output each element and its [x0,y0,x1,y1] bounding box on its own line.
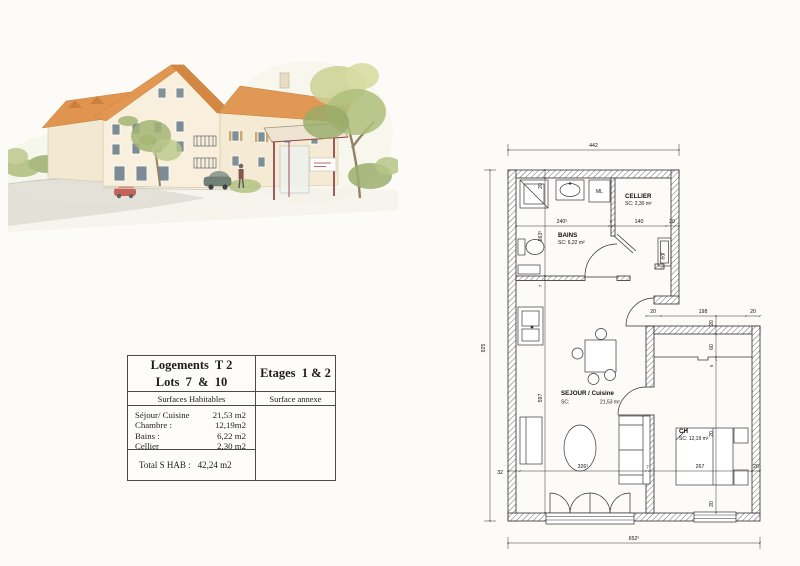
dim-label: 267 [696,464,705,470]
nightstand-icon [734,428,748,443]
lot-title: Logements T 2 [151,357,233,373]
left-wing [48,118,106,182]
french-door-icon [550,493,630,513]
closet-front [654,357,752,360]
dim-label: 32 [497,470,503,476]
window [158,88,166,98]
lot-subtitle: Lots 7 & 10 [156,374,228,390]
bedroom-window-sill [694,512,736,522]
chimney [280,73,289,88]
dim-label: 20 [650,309,656,315]
table-row: Séjour/ Cuisine 21,53 m2 [135,410,246,420]
room-name-bains: BAINS [558,232,577,239]
dim-label: 20 [753,464,759,470]
room-sc-sejour: SC: [561,400,569,406]
room-area-bains: SC: 6,22 m² [558,240,585,246]
cellar-door-icon [614,234,636,253]
row-label: Chambre : [135,420,172,430]
kitchen-sink-icon [518,307,543,345]
shelter-sign [310,158,336,171]
table-row: Bains : 6,22 m2 [135,431,246,441]
bush [229,179,261,193]
dim-label: 20 [669,219,675,225]
total-row: Total S HAB : 42,24 m2 [128,450,256,480]
surface-table: Logements T 2 Lots 7 & 10 Etages 1 & 2 S… [127,355,336,481]
room-name-sejour: SEJOUR / Cuisine [561,390,615,397]
dim-label: 20 [750,309,756,315]
dim-label: 198 [699,309,708,315]
room-area-sejour: 21,53 m² [600,400,620,406]
dim-label: 20 [709,501,715,507]
edf-label: edf [661,252,667,260]
dim-label: 20 [538,183,544,189]
washbasin-icon [556,180,584,200]
armchair-icon [520,417,542,464]
dim-width-bottom: 652⁵ [629,536,640,542]
dim-label: 7 [538,284,543,287]
sofa-icon [619,416,650,484]
bathroom-door-icon [585,244,617,277]
table-row: Chambre : 12,19m2 [135,420,246,430]
dim-label: 597 [538,394,544,403]
row-label: Bains : [135,431,160,441]
dim-label: 5 [709,364,714,367]
dim-width-top: 442 [589,143,598,149]
building-illustration [8,18,398,238]
dim-height-left: 925 [481,344,487,353]
col-header-right: Surface annexe [256,392,335,406]
table-title-right: Etages 1 & 2 [256,356,335,392]
dim-label: 140 [635,219,644,225]
dim-label: 326⁵ [578,464,589,470]
washing-machine-label: ML [596,189,603,195]
edf-panel [658,238,671,266]
dim-label: 263⁵ [538,231,544,242]
annex-cell-empty [256,406,335,480]
room-name-cellier: CELLIER [625,193,652,200]
col-header-left: Surfaces Habitables [128,392,256,406]
document-page: Logements T 2 Lots 7 & 10 Etages 1 & 2 S… [0,0,800,566]
total-label: Total S HAB : [139,460,191,470]
room-area-cellier: SC: 2,30 m² [625,201,652,207]
nightstand-icon [734,470,748,485]
row-value: 21,53 m2 [213,410,246,420]
room-name-chambre: CH [679,428,688,435]
french-window-sill [546,513,634,524]
floor-plan: 442 925 652⁵ 240⁵ 7 140 20 32 326⁵ 7 267… [458,126,798,566]
row-label: Séjour/ Cuisine [135,410,190,420]
dim-label: 20 [709,320,715,326]
room-area-chambre: SC: 12,19 m² [679,436,709,442]
table-title-left: Logements T 2 Lots 7 & 10 [128,356,256,392]
row-value: 6,22 m2 [217,431,246,441]
bedroom-door-icon [618,387,646,415]
row-value: 12,19m2 [215,420,246,430]
shelter-glass [280,146,309,193]
room-labels: BAINS SC: 6,22 m² CELLIER SC: 2,30 m² SE… [558,189,709,442]
surface-rows: Séjour/ Cuisine 21,53 m2 Chambre : 12,19… [128,406,256,450]
window [176,88,184,98]
dim-label: 20 [709,431,715,437]
shelf-icon [518,265,540,274]
dining-table-icon [572,329,616,385]
dim-label: 240⁵ [557,219,568,225]
total-value: 42,24 m2 [198,460,232,470]
dim-label: 60 [709,344,715,350]
